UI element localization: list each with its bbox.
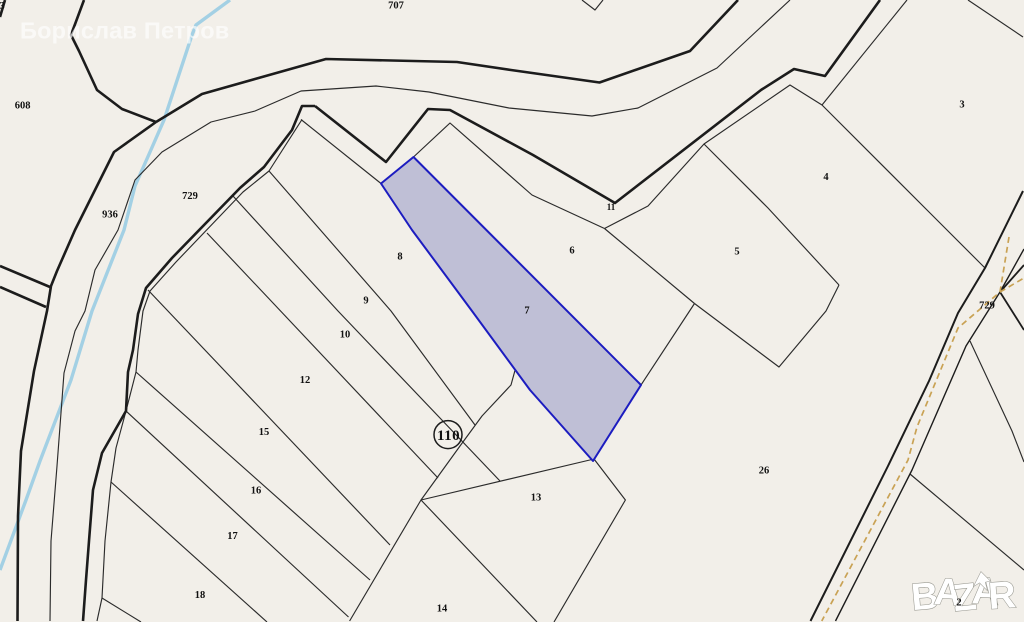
- svg-text:7: 7: [524, 306, 529, 317]
- svg-text:936: 936: [102, 210, 118, 221]
- svg-text:5: 5: [734, 247, 739, 258]
- svg-text:110: 110: [437, 428, 460, 444]
- svg-text:14: 14: [437, 604, 448, 615]
- svg-text:26: 26: [759, 466, 770, 477]
- svg-text:11: 11: [607, 202, 616, 212]
- svg-text:707: 707: [388, 1, 404, 12]
- svg-text:Борислав Петров: Борислав Петров: [20, 18, 229, 44]
- svg-text:6: 6: [569, 246, 574, 257]
- svg-text:729: 729: [182, 191, 198, 202]
- svg-text:15: 15: [259, 427, 270, 438]
- svg-text:17: 17: [227, 531, 238, 542]
- svg-text:4: 4: [823, 172, 829, 183]
- svg-text:R: R: [987, 574, 1017, 618]
- svg-text:608: 608: [15, 101, 31, 112]
- svg-text:12: 12: [300, 375, 311, 386]
- svg-text:13: 13: [531, 493, 542, 504]
- svg-text:2: 2: [956, 598, 961, 609]
- svg-text:10: 10: [340, 330, 351, 341]
- svg-text:18: 18: [195, 590, 206, 601]
- svg-text:9: 9: [363, 296, 368, 307]
- svg-text:729: 729: [979, 301, 995, 312]
- svg-text:3: 3: [959, 100, 964, 111]
- svg-text:16: 16: [251, 486, 262, 497]
- svg-text:3: 3: [0, 1, 5, 12]
- svg-text:8: 8: [397, 252, 402, 263]
